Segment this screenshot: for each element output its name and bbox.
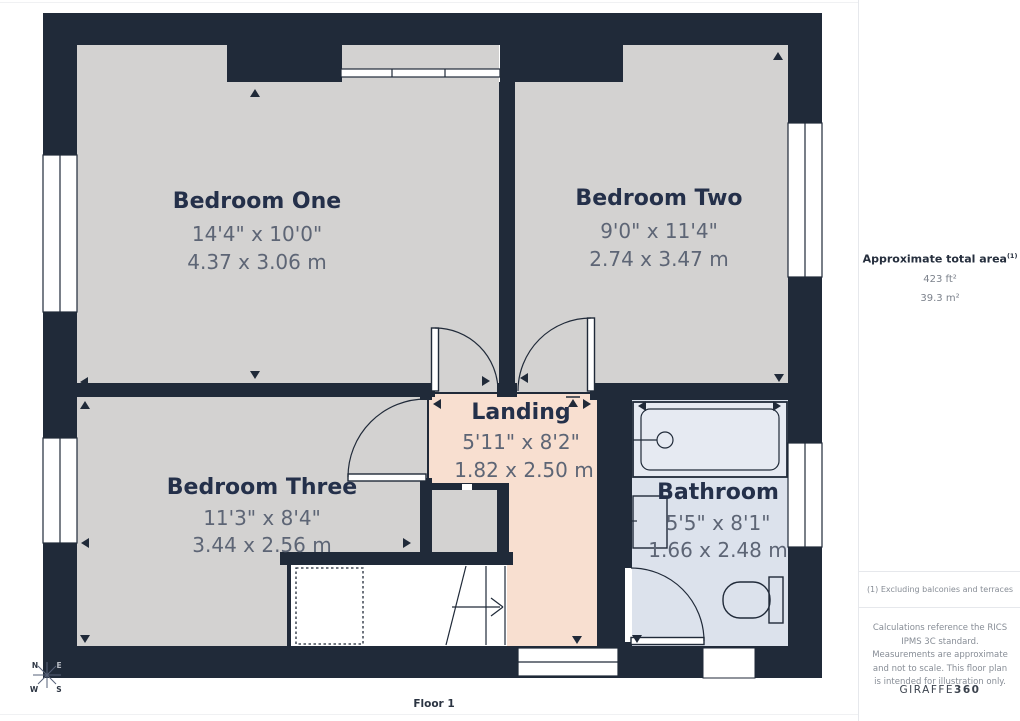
- compass-west-label: W: [30, 685, 39, 694]
- compass-north-label: N: [32, 661, 38, 670]
- room-dims-metric: 3.44 x 2.56 m: [192, 533, 331, 557]
- window: [43, 155, 77, 312]
- wall: [420, 383, 432, 400]
- room-name: Bedroom One: [173, 189, 341, 214]
- wall: [497, 383, 517, 397]
- bedroom-two-label: Bedroom Two 9'0" x 11'4" 2.74 x 3.47 m: [575, 186, 742, 271]
- wall: [788, 13, 822, 678]
- room-dims-imperial: 5'11" x 8'2": [462, 430, 580, 454]
- floor-plan-page: N E W S Bedroom One 14'4" x 10'0" 4.37 x…: [0, 0, 1020, 721]
- room-name: Bathroom: [657, 480, 779, 505]
- info-sidebar: Approximate total area(1) 423 ft² 39.3 m…: [858, 0, 1020, 721]
- bedroom-two-floor: [515, 45, 788, 383]
- room-name: Bedroom Three: [167, 475, 357, 500]
- room-dims-metric: 1.82 x 2.50 m: [454, 458, 593, 482]
- brand-name: GIRAFFE: [900, 684, 955, 696]
- giraffe360-logo: GIRAFFE360: [859, 684, 1020, 696]
- closet-floor: [432, 490, 497, 552]
- wall: [43, 13, 822, 45]
- bathtub: [633, 402, 787, 477]
- brand-suffix: 360: [954, 684, 980, 696]
- wall: [287, 565, 291, 646]
- window: [788, 443, 822, 547]
- room-dims-metric: 2.74 x 3.47 m: [589, 247, 728, 271]
- footnote-reference: (1): [1007, 252, 1017, 260]
- room-dims-imperial: 9'0" x 11'4": [600, 219, 718, 243]
- wall: [43, 383, 435, 397]
- sidebar-divider: [859, 607, 1020, 608]
- window: [43, 438, 77, 543]
- wall: [420, 478, 432, 565]
- window: [518, 648, 618, 676]
- floor-label: Floor 1: [413, 698, 454, 710]
- sidebar-divider: [859, 571, 1020, 572]
- total-area-title-text: Approximate total area: [863, 253, 1007, 266]
- total-area-block: Approximate total area(1) 423 ft² 39.3 m…: [859, 252, 1020, 304]
- room-dims-imperial: 5'5" x 8'1": [666, 511, 771, 535]
- bathroom-label: Bathroom 5'5" x 8'1" 1.66 x 2.48 m: [648, 480, 787, 562]
- closet-opening: [462, 484, 472, 490]
- wall: [499, 82, 515, 383]
- room-dims-imperial: 14'4" x 10'0": [192, 222, 322, 246]
- wall: [43, 13, 77, 678]
- compass-south-label: S: [56, 685, 61, 694]
- cupboard-dashed-outline: [296, 568, 363, 644]
- rics-disclaimer: Calculations reference the RICS IPMS 3C …: [859, 622, 1020, 690]
- bathroom-door-opening: [625, 568, 632, 642]
- compass-east-label: E: [56, 661, 61, 670]
- room-dims-metric: 1.66 x 2.48 m: [648, 538, 787, 562]
- room-name: Landing: [471, 400, 570, 425]
- room-dims-metric: 4.37 x 3.06 m: [187, 250, 326, 274]
- chimney-breast: [227, 45, 342, 82]
- window: [341, 69, 500, 77]
- bedroom-one-label: Bedroom One 14'4" x 10'0" 4.37 x 3.06 m: [173, 189, 341, 274]
- window: [788, 123, 822, 277]
- floor-plan-canvas: N E W S Bedroom One 14'4" x 10'0" 4.37 x…: [0, 0, 858, 721]
- wall-opening: [703, 648, 755, 678]
- total-area-imperial: 423 ft²: [859, 274, 1020, 285]
- total-area-title: Approximate total area(1): [859, 252, 1020, 266]
- wall: [500, 45, 623, 82]
- total-area-metric: 39.3 m²: [859, 293, 1020, 304]
- stairwell-area: [380, 565, 507, 646]
- room-dims-imperial: 11'3" x 8'4": [203, 506, 321, 530]
- room-name: Bedroom Two: [575, 186, 742, 211]
- balconies-footnote: (1) Excluding balconies and terraces: [859, 585, 1020, 594]
